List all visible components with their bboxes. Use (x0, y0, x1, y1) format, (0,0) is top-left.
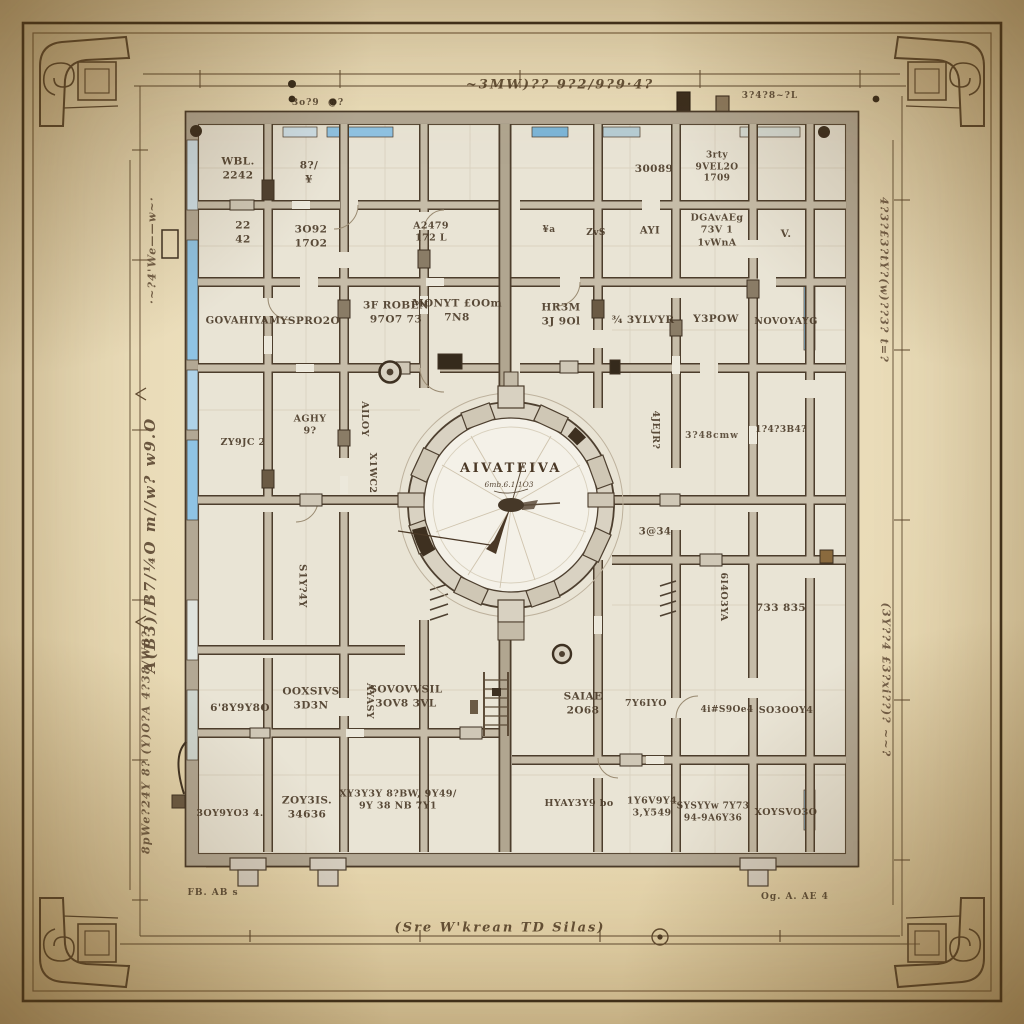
floor-plan: AIVATEIVA 6mb.6.1.1O3 (162, 112, 859, 887)
clock-label: AIVATEIVA (459, 461, 562, 476)
corner-ornament-bl (40, 898, 129, 987)
corner-ornament-br (895, 898, 984, 987)
clock-sub-label: 6mb.6.1.1O3 (484, 480, 533, 489)
blueprint-page: AIVATEIVA 6mb.6.1.1O3 WBL. 22428?/ ¥3008… (0, 0, 1024, 1024)
corner-ornament-tl (40, 37, 129, 126)
corner-ornament-tr (895, 37, 984, 126)
blueprint-drawing: AIVATEIVA 6mb.6.1.1O3 (0, 0, 1024, 1024)
